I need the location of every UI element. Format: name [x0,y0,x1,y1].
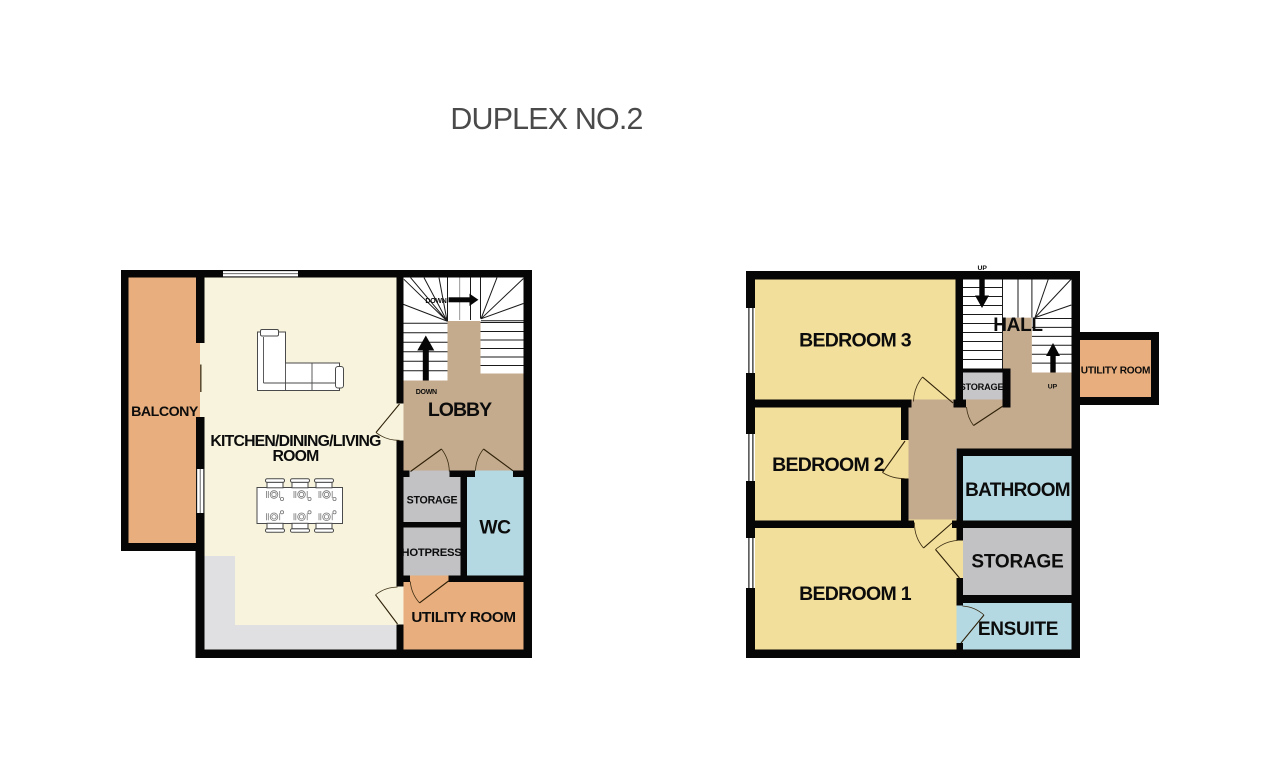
svg-text:BEDROOM 3: BEDROOM 3 [799,329,912,351]
svg-text:DUPLEX NO.2: DUPLEX NO.2 [450,102,642,136]
svg-text:DOWN: DOWN [416,389,437,396]
svg-text:BATHROOM: BATHROOM [965,480,1070,501]
svg-text:UP: UP [978,265,988,272]
svg-text:STORAGE: STORAGE [407,494,458,506]
svg-text:STORAGE: STORAGE [960,382,1004,392]
svg-text:BEDROOM 1: BEDROOM 1 [799,583,912,605]
svg-text:HALL: HALL [993,315,1043,336]
svg-text:BEDROOM 2: BEDROOM 2 [772,454,885,476]
svg-text:STORAGE: STORAGE [971,552,1063,573]
svg-text:LOBBY: LOBBY [428,399,492,421]
svg-text:ROOM: ROOM [273,448,320,465]
svg-text:WC: WC [479,517,511,538]
svg-text:ENSUITE: ENSUITE [978,619,1058,640]
svg-text:UTILITY ROOM: UTILITY ROOM [1081,366,1150,377]
svg-text:BALCONY: BALCONY [131,404,199,420]
svg-text:UTILITY ROOM: UTILITY ROOM [411,609,515,626]
svg-text:HOTPRESS: HOTPRESS [401,547,462,559]
svg-text:DOWN: DOWN [425,298,446,305]
svg-text:UP: UP [1048,383,1058,390]
